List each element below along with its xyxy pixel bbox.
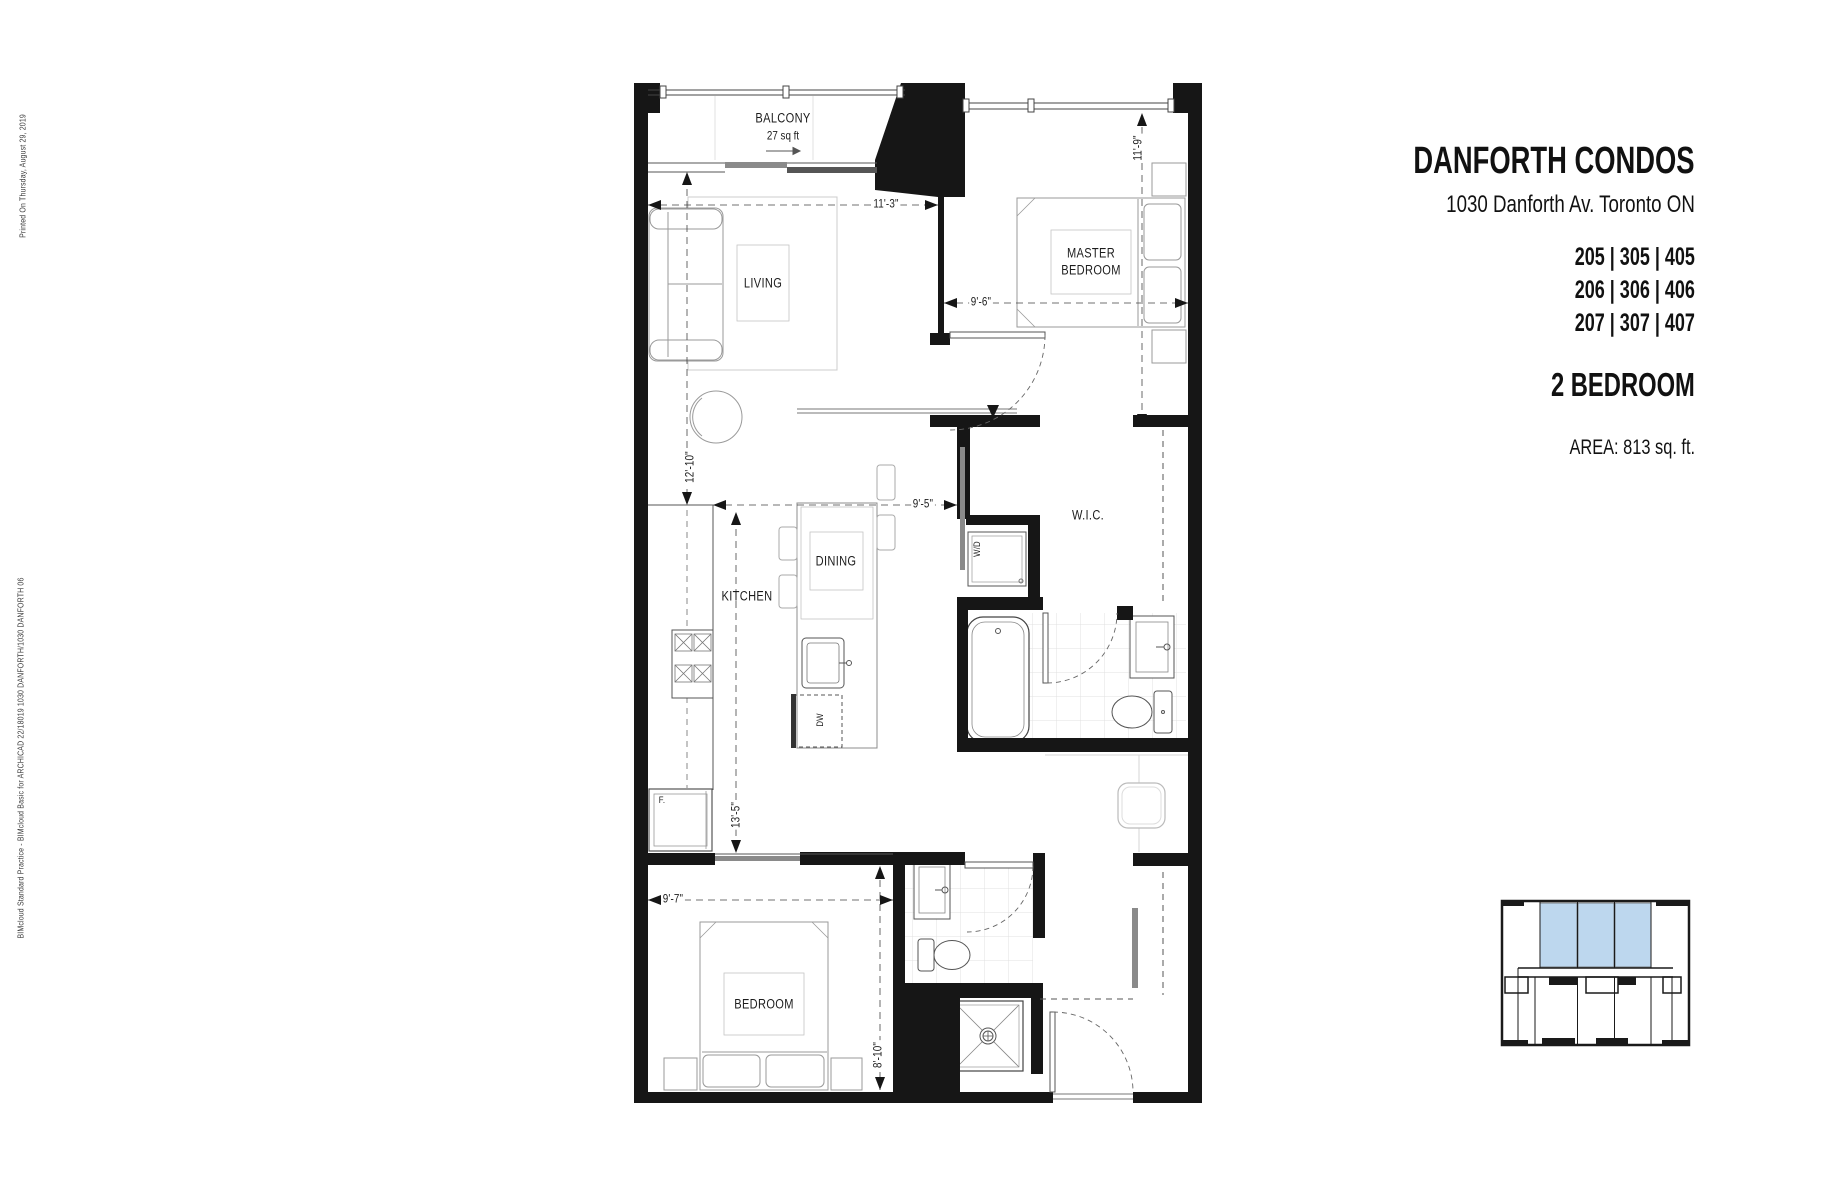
bim-note: BIMcloud Standard Practice - BIMcloud Ba… [16, 577, 27, 938]
closet-sliding-door [1132, 908, 1138, 988]
window-mullion [897, 86, 903, 98]
floor-plan-sheet: { "title_block": { "project": "DANFORTH … [0, 0, 1836, 1188]
vanity-sink [1130, 616, 1174, 678]
island-sink [802, 638, 852, 688]
nightstand [1152, 330, 1186, 363]
hall-stool [1045, 755, 1188, 852]
nightstand [1152, 163, 1186, 196]
laundry-door [960, 447, 965, 570]
window-mullion [1168, 99, 1174, 112]
fridge-label: F. [659, 795, 665, 807]
shower [953, 1001, 1023, 1071]
bedroom-sliding-door [715, 856, 800, 861]
nightstand [664, 1058, 697, 1090]
key-plan-highlight-unit [1615, 903, 1651, 967]
room-label-bedroom: BEDROOM [734, 995, 794, 1012]
vanity-sink [914, 861, 950, 919]
key-plan-highlight-unit [1540, 903, 1577, 967]
room-label-living: LIVING [744, 274, 782, 291]
balcony-slider-panel [725, 162, 787, 168]
unit-stack-row: 205 | 305 | 405 [1528, 243, 1695, 272]
washer-dryer-label: W/D [972, 541, 984, 557]
room-label-kitchen: KITCHEN [722, 587, 773, 604]
project-title: DANFORTH CONDOS [1304, 140, 1695, 183]
nightstand [831, 1058, 862, 1090]
unit-stack-row: 207 | 307 | 407 [1528, 309, 1695, 338]
unit-stack-row: 206 | 306 | 406 [1528, 276, 1695, 305]
dim-hall-width: 9'-5" [911, 496, 935, 511]
suite-type: 2 BEDROOM [1495, 366, 1695, 404]
window-mullion [660, 86, 666, 98]
bathtub [967, 617, 1029, 742]
chair [877, 515, 895, 550]
room-label-master-bedroom: MASTER BEDROOM [1061, 245, 1121, 280]
chair [779, 527, 797, 560]
stove [672, 630, 713, 698]
key-plan-highlight-unit [1578, 903, 1614, 967]
dim-bedroom-width: 9'-7" [661, 891, 685, 906]
dishwasher-label: DW [815, 713, 827, 726]
dim-living-depth: 12'-10" [682, 450, 697, 485]
chair [877, 465, 895, 500]
balcony-arrow [766, 148, 800, 155]
toilet [918, 939, 970, 971]
balcony-area-label: 27 sq ft [767, 128, 799, 143]
entry-door [1050, 1012, 1133, 1092]
washer-dryer-unit [968, 532, 1026, 586]
armchair [690, 391, 742, 443]
printed-on-note: Printed On Thursday, August 29, 2019 [18, 114, 29, 238]
room-label-balcony: BALCONY [755, 109, 810, 126]
suite-area: AREA: 813 sq. ft. [1534, 436, 1695, 460]
dim-kitchen-run: 13'-5" [728, 800, 743, 829]
dim-bedroom-depth: 8'-10" [870, 1040, 885, 1069]
window-mullion [963, 99, 969, 112]
dim-master-depth: 11'-9" [1130, 134, 1145, 163]
window-mullion [1028, 99, 1034, 112]
project-address: 1030 Danforth Av. Toronto ON [1376, 191, 1695, 219]
dining-island [779, 465, 895, 748]
key-plan [1502, 901, 1689, 1046]
dim-living-width: 11'-3" [872, 196, 901, 211]
dim-master-width: 9'-6" [969, 294, 993, 309]
sofa [649, 208, 723, 361]
room-label-wic: W.I.C. [1072, 506, 1104, 523]
balcony-slider-panel [787, 167, 877, 173]
room-label-dining: DINING [816, 552, 857, 569]
chair [779, 575, 797, 608]
window-mullion [783, 86, 789, 98]
